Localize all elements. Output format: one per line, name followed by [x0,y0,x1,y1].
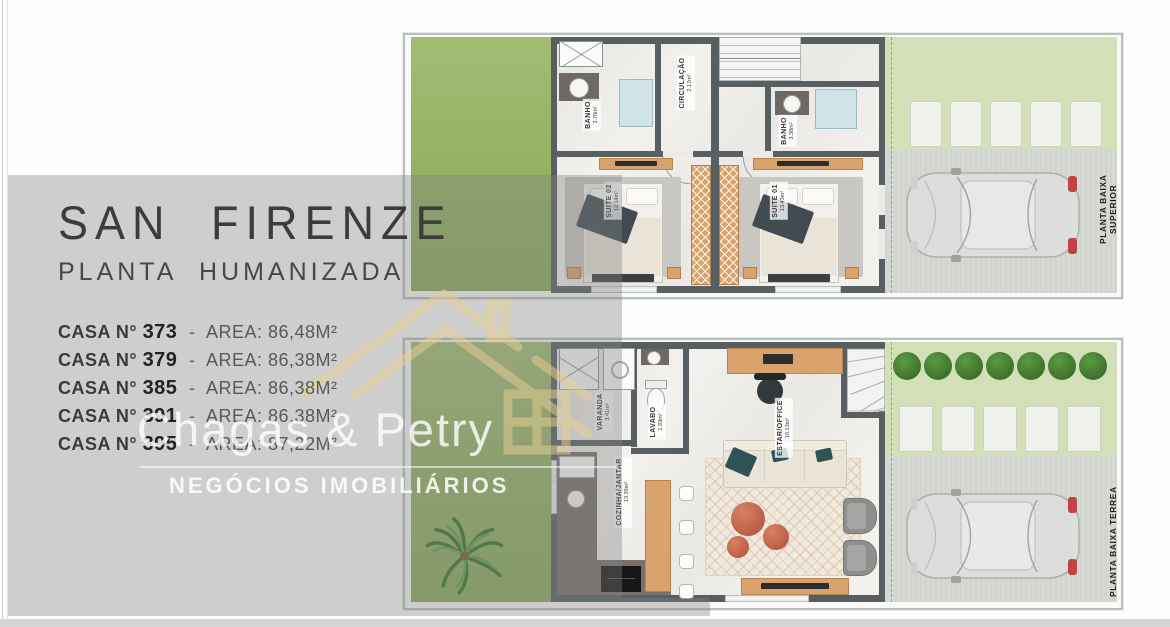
cushion-line [804,449,805,481]
paver-slab [941,406,975,452]
bush-icon [1048,352,1076,380]
bush-icon [924,352,952,380]
page-bottom-strip [0,619,1170,627]
paver-slab [910,101,942,147]
unit-label: CASA N° [58,378,137,398]
bush-icon [955,352,983,380]
property-line [891,37,892,293]
brand-watermark: Chagas & Petry NEGÓCIOS IMOBILIÁRIOS [137,402,618,499]
pillow-icon [815,447,833,462]
wall [631,448,689,454]
paver-slab [1030,101,1062,147]
pouf-icon [763,524,789,550]
wall [683,342,689,454]
wall [713,81,885,87]
wall [841,412,885,418]
pouf-icon [731,502,765,536]
area-label: AREA: [206,378,263,398]
unit-label: CASA N° [58,434,137,454]
area-label: AREA: [206,322,263,342]
stairs-icon [719,37,801,81]
pillow-icon [802,188,834,205]
room-label-estar: ESTAR/OFFICE 16.13m² [775,398,793,458]
basin-icon [647,351,661,365]
unit-area: 86,38M² [268,378,338,398]
tv-icon [761,583,829,589]
gray-overlay-panel-extension [622,598,710,616]
wardrobe-closet-icon [719,165,739,285]
brand-name: Chagas & Petry [137,402,618,457]
paver-slab [950,101,982,147]
bench-icon [768,274,830,282]
wall [765,81,771,157]
bar-stool-icon [679,486,694,501]
cushion-line [764,449,765,481]
winder-stairs-icon [847,348,885,412]
wall [711,37,719,151]
wardrobe-closet-icon [691,165,711,285]
wall [655,37,661,151]
area-label: AREA: [206,350,263,370]
brand-tagline: NEGÓCIOS IMOBILIÁRIOS [169,473,618,499]
paver-slab [983,406,1017,452]
basin-icon [783,95,801,113]
bar-stool-icon [679,554,694,569]
unit-row: CASA N° 379 - AREA: 86,38M² [58,349,453,372]
paver-slab [899,406,933,452]
page-edge-line [2,0,3,620]
paver-slab [1025,406,1059,452]
nightstand-icon [845,267,859,279]
separator: - [183,350,202,370]
paver-slab [990,101,1022,147]
room-label-circulacao: CIRCULAÇÃO 2.17m² [677,55,695,110]
unit-row: CASA N° 385 - AREA: 86,38M² [58,377,453,400]
unit-number: 379 [143,349,178,371]
nightstand-icon [667,267,681,279]
brand-divider [140,466,618,468]
bush-icon [893,352,921,380]
plan-upper-side-label: PLANTA BAIXA SUPERIOR [1098,150,1118,268]
basin-icon [569,78,589,98]
page: BANHO 3.70m² CIRCULAÇÃO 2.17m² BANHO 3.3… [0,0,1170,627]
room-label-banho2: BANHO 3.38m² [779,115,797,147]
bush-icon [1079,352,1107,380]
bar-stool-icon [679,520,694,535]
unit-label: CASA N° [58,350,137,370]
bush-icon [1017,352,1045,380]
car-icon [905,167,1083,263]
paver-slab [1067,406,1101,452]
stair-rail [719,58,801,59]
tv-icon [615,161,657,166]
project-subtitle: PLANTA HUMANIZADA [58,258,453,287]
nightstand-icon [743,267,757,279]
pillow-icon [626,188,658,205]
pillow-icon [725,447,758,478]
window [775,286,841,293]
bush-icon [986,352,1014,380]
paver-slab [1070,101,1102,147]
unit-label: CASA N° [58,322,137,342]
tv-icon [777,161,829,166]
wall [711,151,719,286]
unit-row: CASA N° 373 - AREA: 86,48M² [58,321,453,344]
room-label-lavabo: LAVABO 1.93m² [648,405,666,440]
separator: - [183,378,202,398]
armchair-icon [843,540,877,576]
unit-label: CASA N° [58,406,137,426]
page-edge-line [7,0,8,620]
shower-icon [619,79,653,127]
pouf-icon [727,536,749,558]
laptop-icon [763,354,793,364]
bar-stool-icon [679,584,694,599]
property-line [891,342,892,602]
window [725,595,809,602]
separator: - [183,322,202,342]
bar-counter [645,480,671,592]
room-label-banho1: BANHO 3.70m² [583,99,601,131]
armchair-icon [843,498,877,534]
unit-number: 373 [143,321,178,343]
room-label-suite01: SUITE 01 13.43m² [770,182,788,220]
plan-lower-side-label: PLANTA BAIXA TERREA [1108,486,1118,598]
project-title: SAN FIRENZE [58,196,453,251]
shower-icon [815,89,857,129]
unit-area: 86,48M² [268,322,338,342]
unit-area: 86,38M² [268,350,338,370]
unit-number: 385 [143,377,178,399]
linen-closet-icon [559,41,603,67]
car-icon [905,488,1083,584]
